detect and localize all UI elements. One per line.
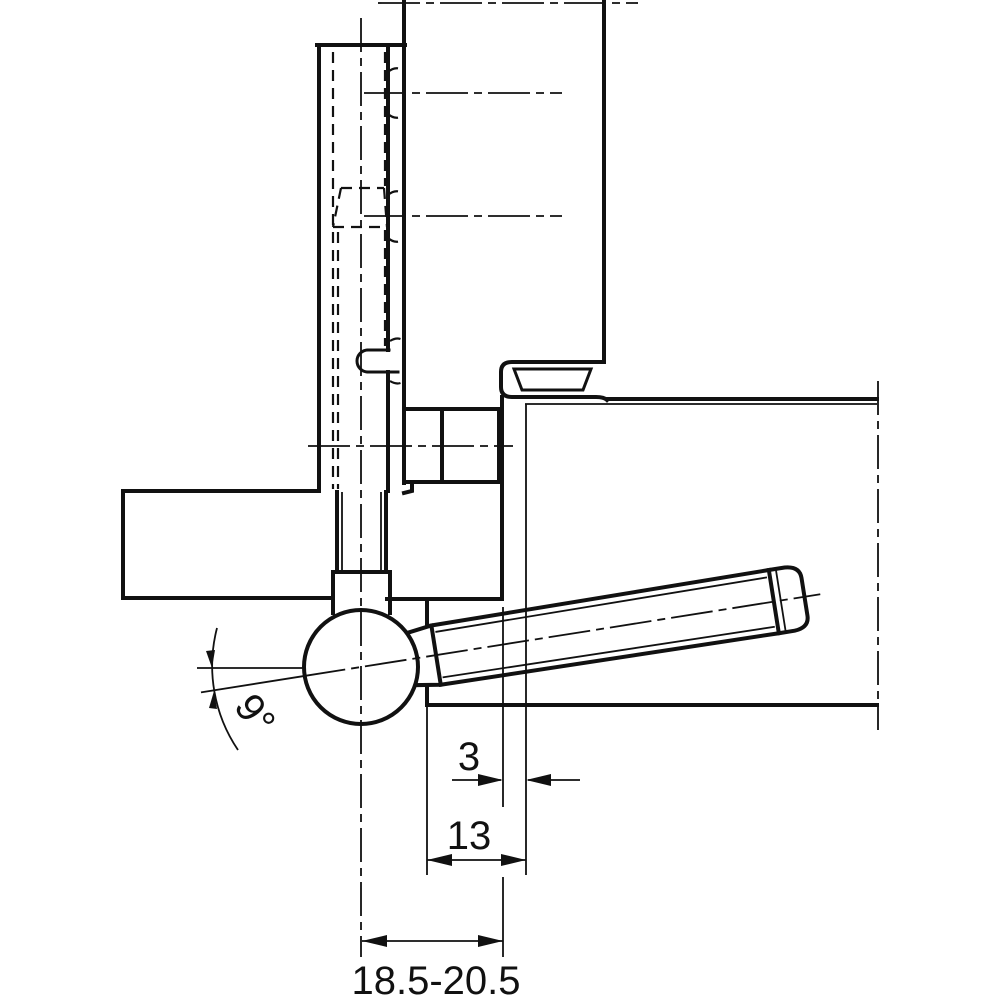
hinge-plate xyxy=(123,491,331,598)
lever-arm xyxy=(403,565,809,691)
dimension-range-label: 18.5-20.5 xyxy=(351,959,520,1000)
technical-drawing-page: 9° 3 13 18.5-20.5 xyxy=(0,0,1000,1000)
angle-dimension-label: 9° xyxy=(226,686,284,743)
hole-center-lines xyxy=(364,93,562,216)
hinge-section-drawing: 9° 3 13 18.5-20.5 xyxy=(0,0,1000,1000)
dimension-offset: 3 xyxy=(452,735,580,786)
dimension-depth-label: 13 xyxy=(447,814,492,858)
dimension-depth: 13 xyxy=(427,814,526,866)
extension-lines xyxy=(503,404,526,957)
dimension-offset-label: 3 xyxy=(458,735,480,779)
dimension-range: 18.5-20.5 xyxy=(351,935,520,1000)
angle-dimension: 9° xyxy=(197,628,304,750)
